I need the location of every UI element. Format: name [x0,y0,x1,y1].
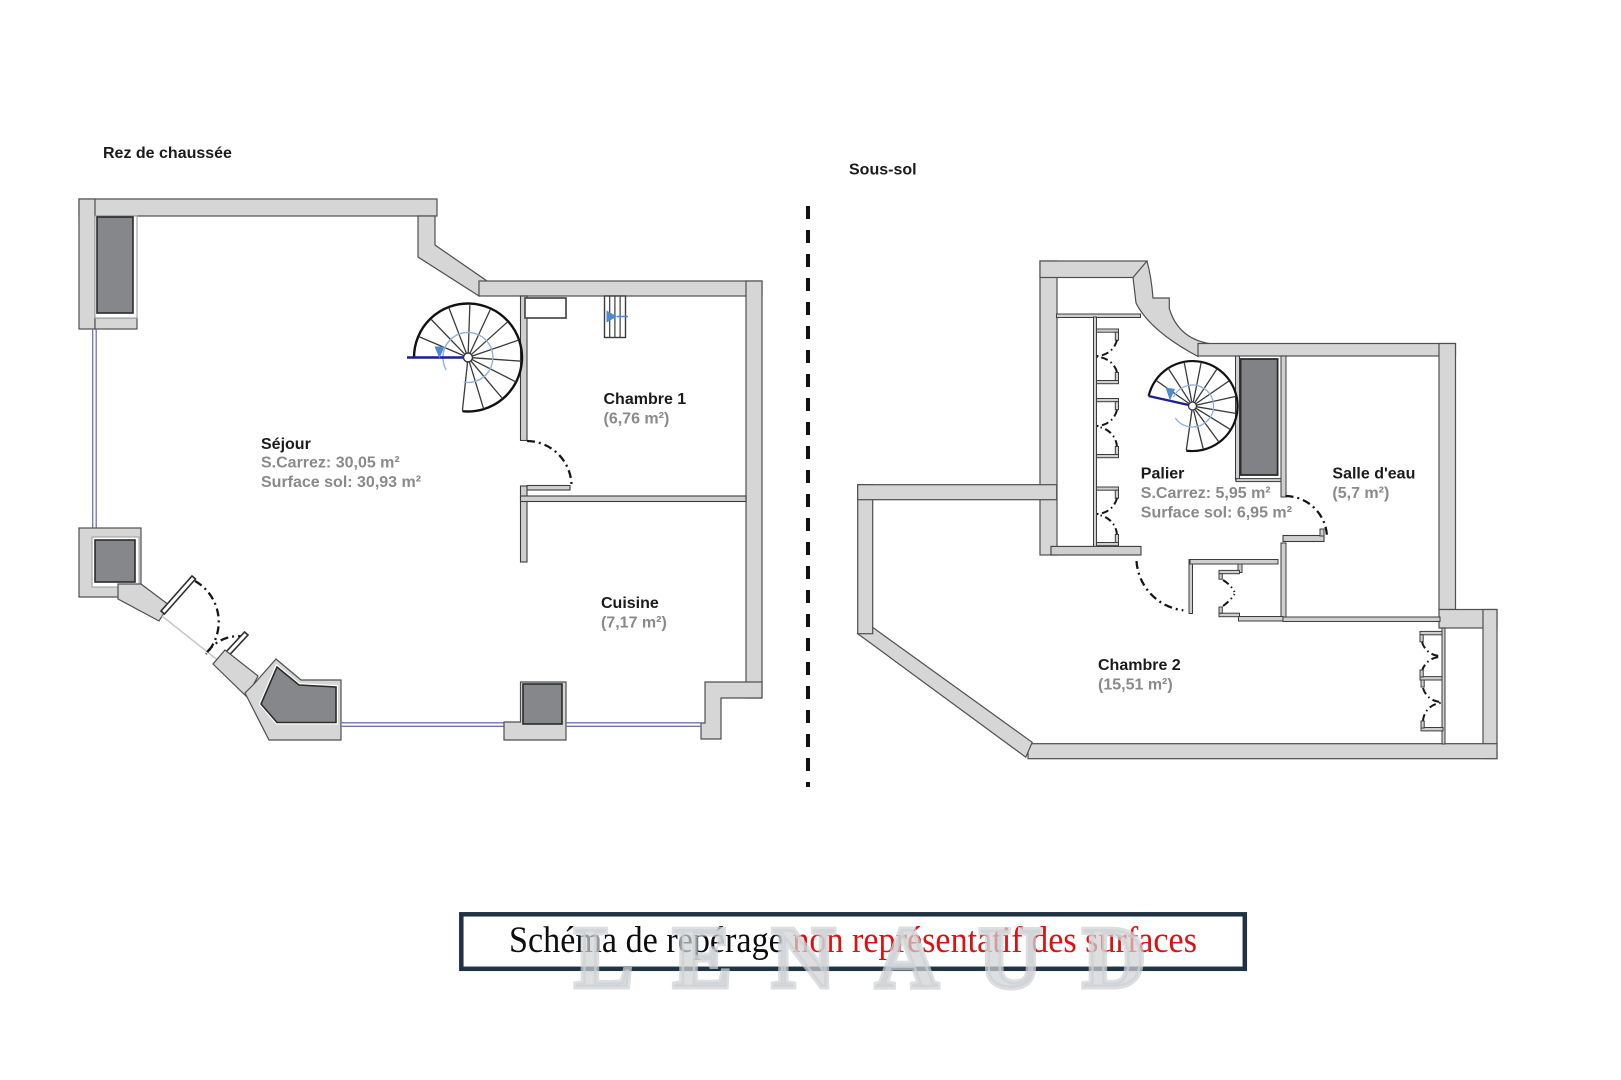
svg-text:Chambre 1: Chambre 1 [604,391,687,408]
svg-text:(7,17 m²): (7,17 m²) [601,615,667,632]
svg-text:Chambre 2: Chambre 2 [1098,657,1181,674]
svg-text:Salle d'eau: Salle d'eau [1332,466,1415,483]
svg-text:Cuisine: Cuisine [601,595,659,612]
svg-text:LENAUD: LENAUD [574,910,1186,1007]
svg-text:Rez de chaussée: Rez de chaussée [103,145,232,162]
svg-text:S.Carrez: 5,95 m²: S.Carrez: 5,95 m² [1141,485,1271,502]
svg-text:(6,76 m²): (6,76 m²) [604,411,670,428]
svg-text:S.Carrez: 30,05 m²: S.Carrez: 30,05 m² [261,455,400,472]
svg-text:Séjour: Séjour [261,436,311,453]
svg-text:(5,7 m²): (5,7 m²) [1332,485,1389,502]
svg-text:Palier: Palier [1141,466,1185,483]
svg-text:(15,51 m²): (15,51 m²) [1098,677,1173,694]
svg-text:Surface sol: 30,93 m²: Surface sol: 30,93 m² [261,474,421,491]
svg-text:Sous-sol: Sous-sol [849,162,917,179]
svg-text:Surface sol: 6,95 m²: Surface sol: 6,95 m² [1141,505,1292,522]
